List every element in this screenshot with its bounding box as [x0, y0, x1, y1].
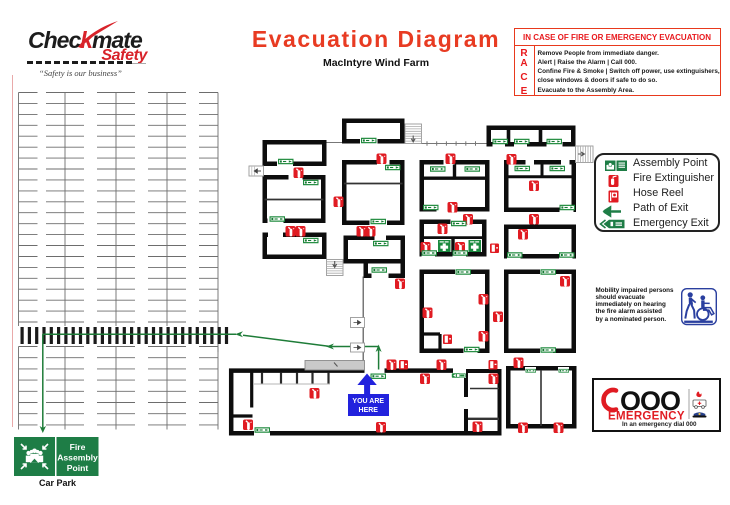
svg-text:Fire: Fire	[70, 442, 86, 452]
svg-text:Point: Point	[67, 463, 89, 473]
svg-text:Assembly: Assembly	[57, 452, 98, 462]
svg-text:In an emergency dial 000: In an emergency dial 000	[622, 421, 697, 428]
